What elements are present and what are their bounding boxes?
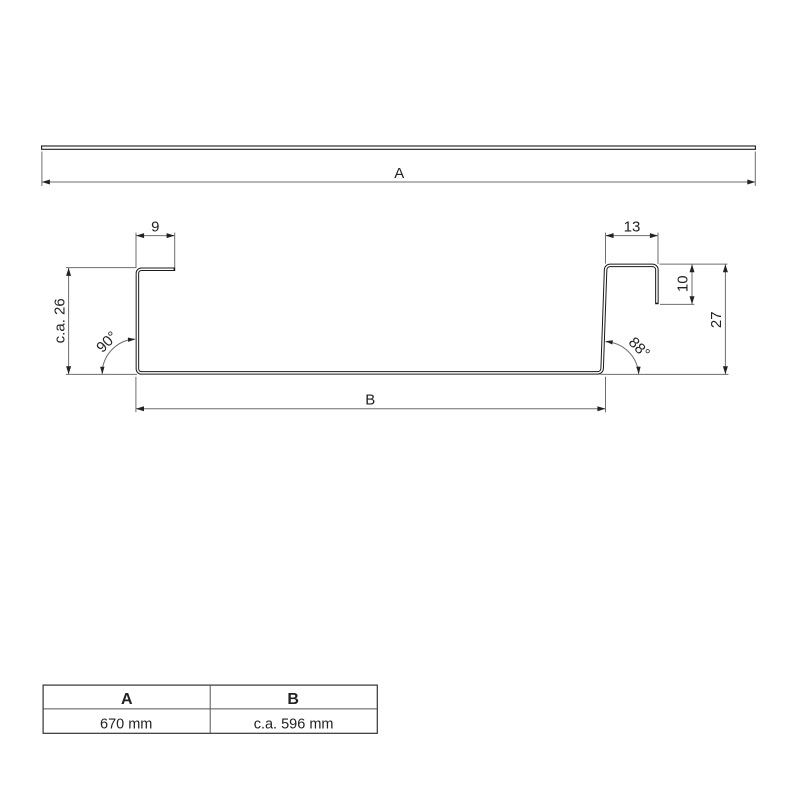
svg-text:B: B — [287, 691, 299, 708]
svg-text:13: 13 — [624, 218, 641, 235]
svg-text:c.a. 596 mm: c.a. 596 mm — [254, 717, 334, 733]
svg-text:9: 9 — [151, 218, 159, 235]
svg-text:B: B — [365, 392, 375, 409]
svg-text:A: A — [121, 691, 133, 708]
svg-text:10: 10 — [675, 275, 692, 292]
svg-text:c.a. 26: c.a. 26 — [52, 298, 69, 343]
svg-text:27: 27 — [708, 311, 725, 328]
svg-text:A: A — [394, 165, 404, 182]
svg-text:670 mm: 670 mm — [100, 717, 152, 733]
